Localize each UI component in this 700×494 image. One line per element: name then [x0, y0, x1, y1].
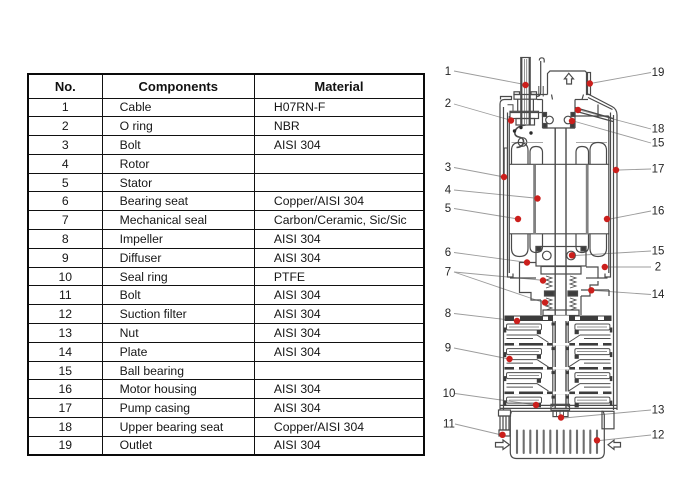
svg-text:5: 5 [445, 203, 451, 215]
svg-text:2: 2 [655, 262, 661, 274]
svg-text:3: 3 [445, 162, 451, 174]
svg-text:9: 9 [445, 343, 451, 355]
svg-text:6: 6 [445, 247, 451, 259]
svg-text:2: 2 [445, 98, 451, 110]
svg-text:19: 19 [652, 67, 665, 79]
svg-text:8: 8 [445, 308, 451, 320]
svg-text:10: 10 [443, 388, 456, 400]
svg-text:18: 18 [652, 124, 665, 136]
svg-text:4: 4 [445, 185, 452, 197]
svg-text:15: 15 [652, 246, 665, 258]
svg-text:11: 11 [443, 419, 455, 431]
svg-text:13: 13 [652, 405, 665, 417]
svg-text:15: 15 [652, 138, 665, 150]
svg-text:14: 14 [652, 289, 665, 301]
svg-text:17: 17 [652, 164, 665, 176]
svg-text:16: 16 [652, 206, 665, 218]
svg-text:7: 7 [445, 267, 451, 279]
svg-text:1: 1 [445, 66, 451, 78]
svg-text:12: 12 [652, 430, 665, 442]
